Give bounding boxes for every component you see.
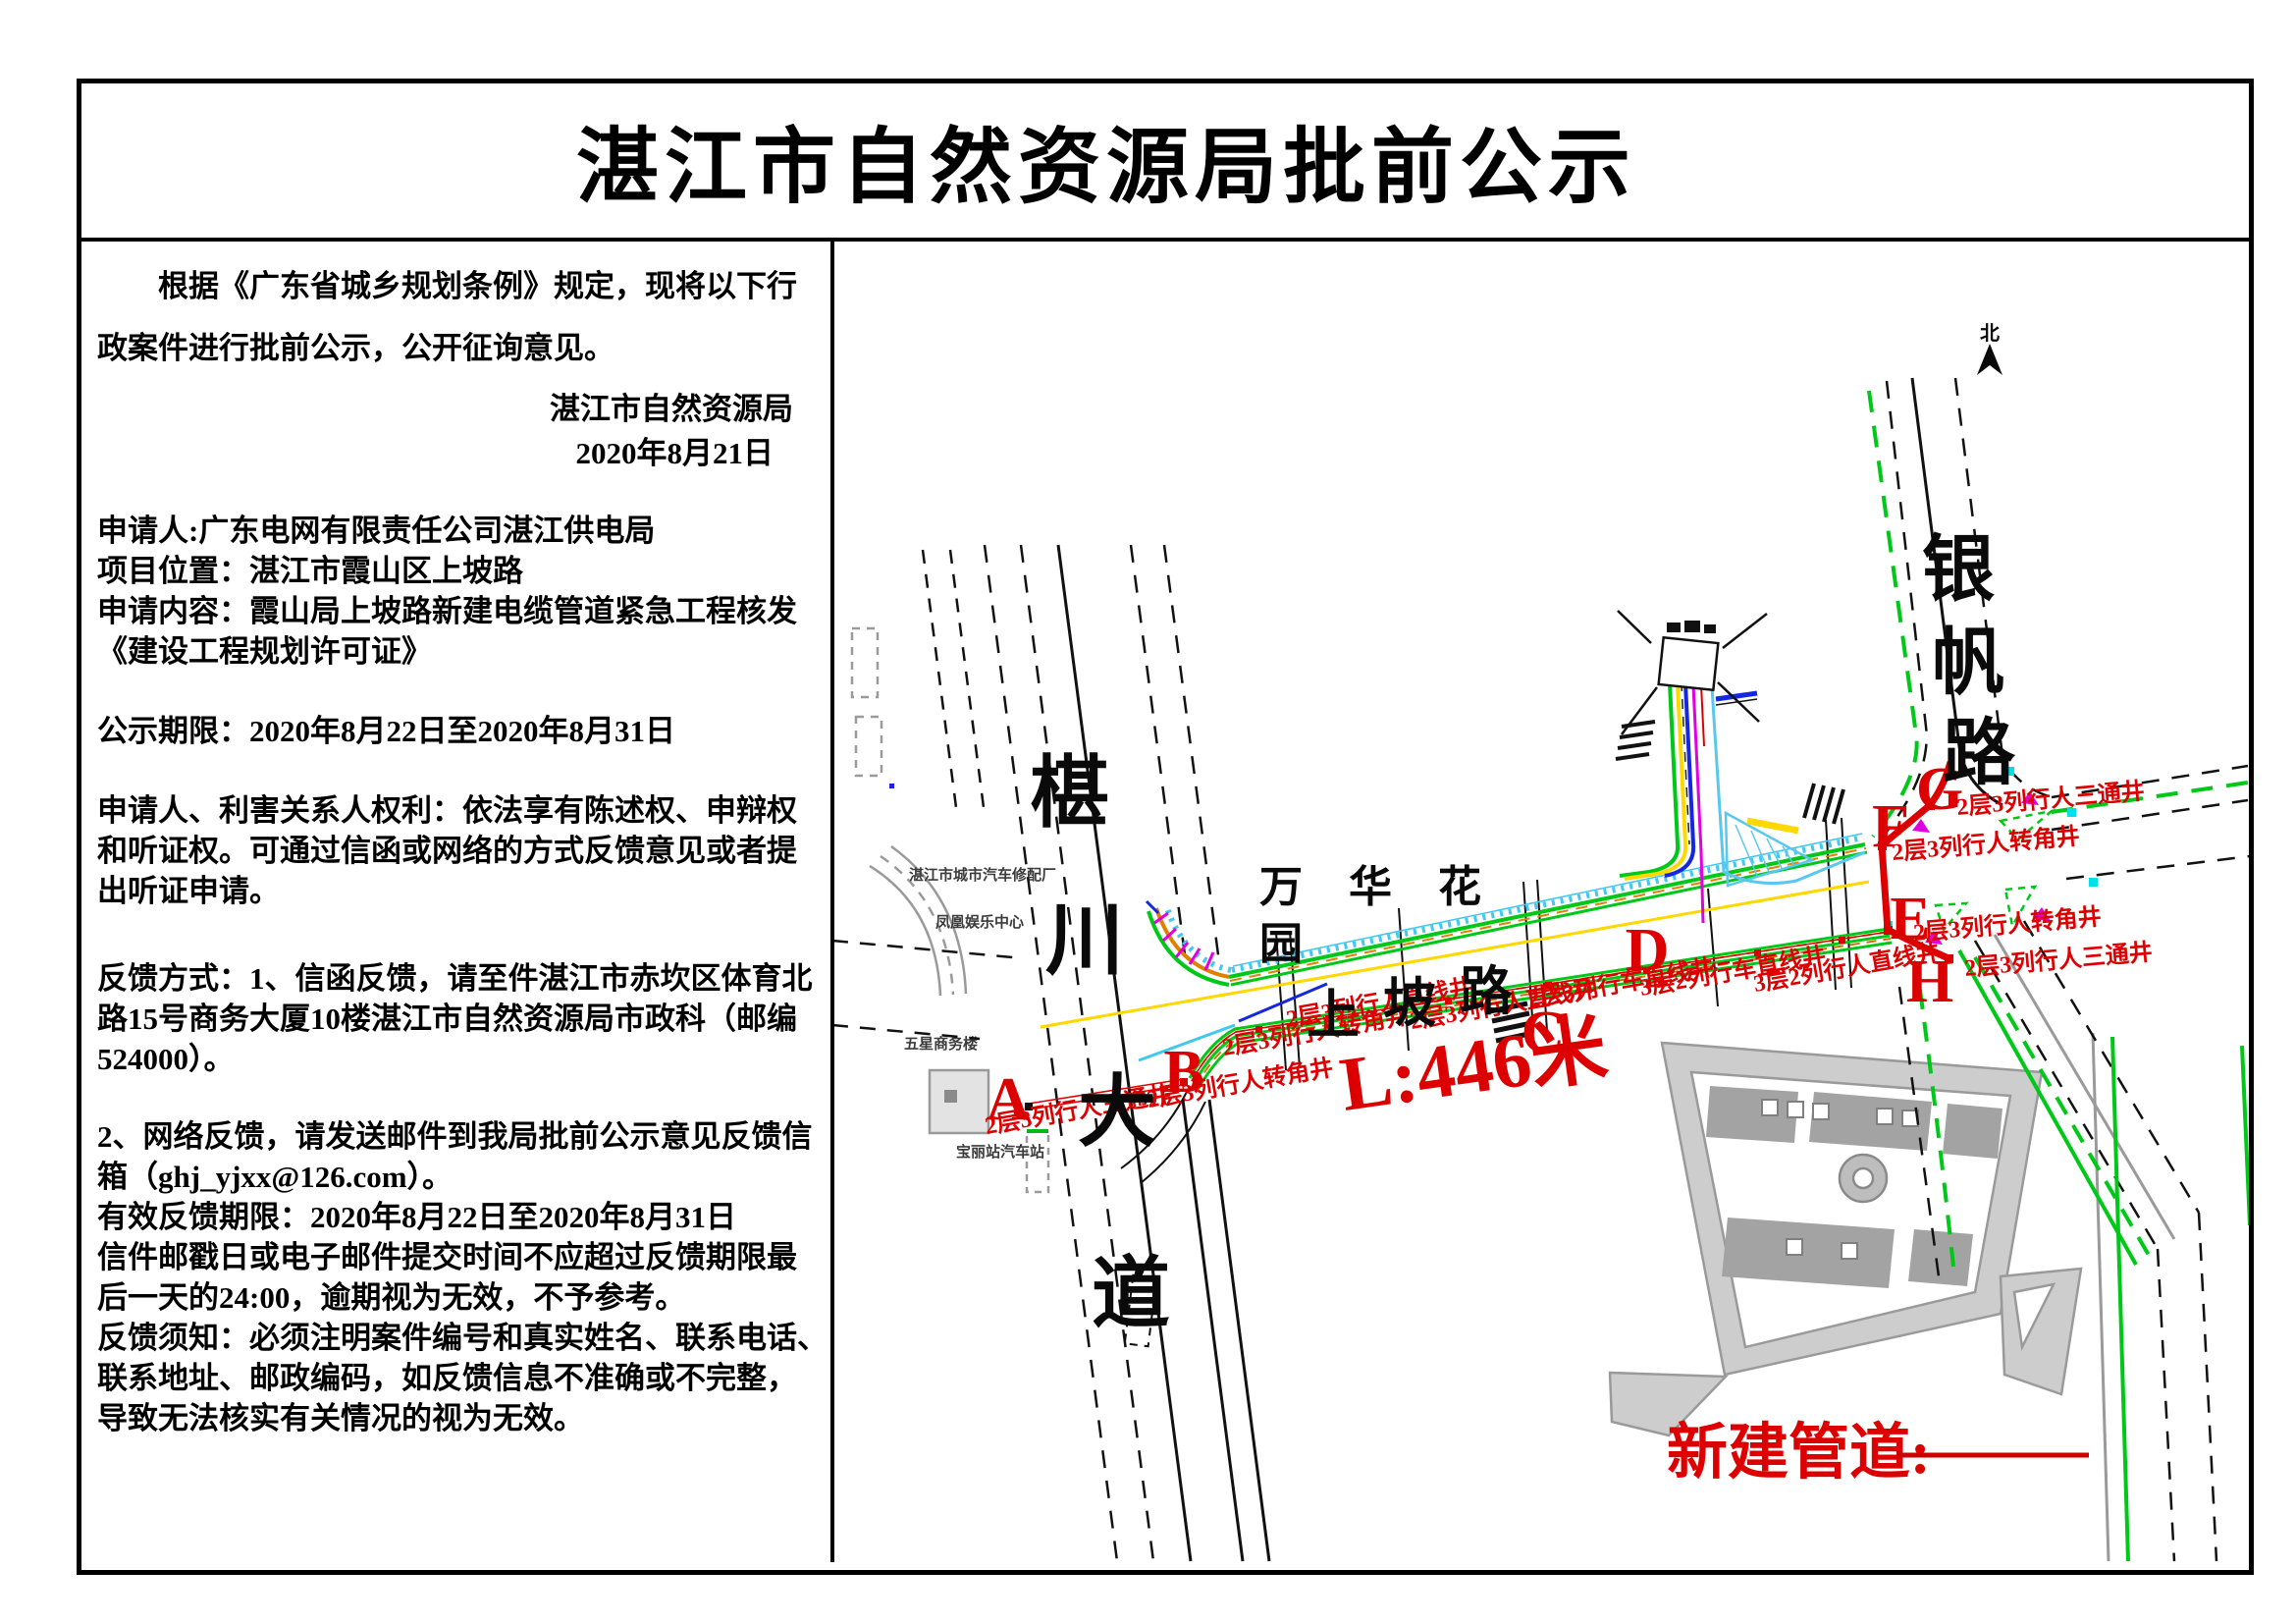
road-name-char: 椹 [1031, 751, 1109, 838]
poi-label: 宝丽站汽车站 [956, 1143, 1044, 1161]
substation-symbol [1618, 611, 1767, 734]
well-label: 2层3列行人三通井 [1963, 938, 2154, 982]
road-name-char: 大 [1078, 1070, 1156, 1157]
public-notice-page: 湛江市城市汽车修配厂 凤凰娱乐中心 五星商务楼 宝丽站汽车站 [0, 0, 2296, 1624]
poi-label: 凤凰娱乐中心 [935, 913, 1024, 931]
north-label: 北 [1980, 322, 2000, 345]
poi-label: 湛江市城市汽车修配厂 [909, 866, 1056, 884]
wanhua-line1: 万 华 花 [1259, 863, 1499, 911]
road-name-char: 路 [1943, 714, 2016, 794]
road-name-char: 帆 [1932, 623, 2004, 704]
wanhua-line2: 园 [1259, 920, 1320, 968]
road-name-char: 银 [1922, 530, 1995, 611]
legend: 新建管道: [1667, 1419, 2089, 1487]
site-plan-map: 湛江市城市汽车修配厂 凤凰娱乐中心 五星商务楼 宝丽站汽车站 [0, 0, 2296, 1624]
poi-label: 五星商务楼 [904, 1035, 978, 1053]
north-arrow-icon: 北 [1977, 322, 2002, 375]
well-label: 2层3列行人转角井 [1912, 902, 2103, 947]
road-name-char: 道 [1092, 1252, 1170, 1338]
west-side-road [832, 941, 1023, 1039]
road-name-char: 上 [1307, 986, 1360, 1045]
road-name-yinfan: 银 帆 路 [1922, 530, 2016, 794]
legend-label: 新建管道: [1667, 1419, 1931, 1487]
road-name-char: 坡 [1383, 974, 1436, 1033]
substation-branch [1620, 664, 1865, 923]
road-name-char: 川 [1045, 898, 1124, 985]
road-name-char: 路 [1460, 962, 1514, 1021]
